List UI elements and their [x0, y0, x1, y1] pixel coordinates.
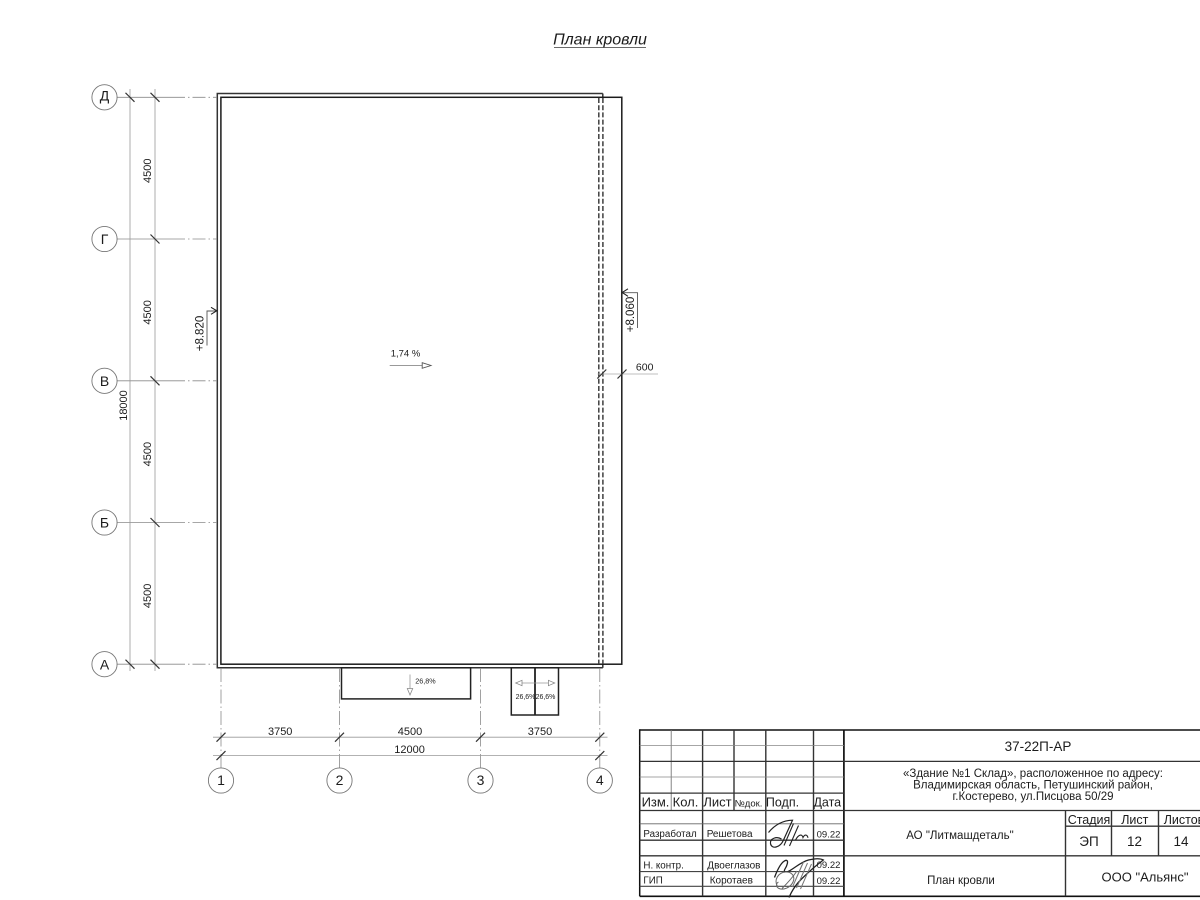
svg-text:Д: Д	[100, 87, 110, 103]
svg-text:600: 600	[636, 362, 654, 374]
svg-text:Листов: Листов	[1164, 813, 1200, 827]
svg-text:4500: 4500	[398, 726, 422, 738]
svg-text:Н. контр.: Н. контр.	[643, 861, 683, 872]
svg-text:4500: 4500	[142, 442, 154, 466]
svg-text:Дата: Дата	[813, 795, 841, 809]
svg-text:ЭП: ЭП	[1079, 834, 1098, 849]
svg-text:Владимирская область, Петушинс: Владимирская область, Петушинский район,	[913, 780, 1153, 792]
svg-text:№док.: №док.	[735, 798, 763, 809]
svg-text:3750: 3750	[528, 726, 552, 738]
svg-text:4500: 4500	[142, 300, 154, 324]
svg-text:Разработал: Разработал	[643, 829, 697, 840]
svg-text:Б: Б	[100, 515, 109, 531]
svg-text:Кол.: Кол.	[673, 794, 699, 809]
svg-text:26,8%: 26,8%	[415, 677, 436, 686]
svg-text:14: 14	[1173, 834, 1189, 849]
svg-text:3: 3	[477, 772, 485, 788]
svg-text:4500: 4500	[142, 158, 154, 182]
svg-text:12000: 12000	[394, 744, 425, 756]
svg-text:1: 1	[217, 772, 225, 788]
svg-text:1,74 %: 1,74 %	[391, 349, 421, 360]
svg-text:Решетова: Решетова	[707, 829, 753, 840]
svg-text:А: А	[100, 656, 110, 672]
svg-text:г.Костерево, ул.Писцова 50/29: г.Костерево, ул.Писцова 50/29	[953, 791, 1114, 803]
svg-text:Г: Г	[101, 231, 109, 247]
svg-text:План кровли: План кровли	[927, 875, 995, 887]
svg-text:АО "Литмашдеталь": АО "Литмашдеталь"	[906, 830, 1013, 842]
svg-text:4: 4	[596, 772, 604, 788]
svg-text:ГИП: ГИП	[643, 876, 662, 887]
svg-text:+8.820: +8.820	[195, 316, 207, 352]
svg-text:«Здание №1 Склад», расположенн: «Здание №1 Склад», расположенное по адре…	[903, 768, 1163, 780]
svg-text:09.22: 09.22	[817, 830, 841, 841]
svg-text:37-22П-АР: 37-22П-АР	[1005, 739, 1072, 754]
svg-text:12: 12	[1127, 834, 1142, 849]
svg-text:Подп.: Подп.	[766, 795, 799, 809]
svg-text:План кровли: План кровли	[553, 32, 647, 49]
svg-text:26,6%: 26,6%	[536, 694, 556, 701]
svg-text:Коротаев: Коротаев	[710, 876, 753, 887]
svg-text:Изм.: Изм.	[642, 794, 670, 809]
svg-text:2: 2	[336, 772, 344, 788]
svg-text:3750: 3750	[268, 726, 292, 738]
svg-text:В: В	[100, 373, 109, 389]
svg-text:Двоеглазов: Двоеглазов	[707, 861, 760, 872]
svg-text:18000: 18000	[118, 390, 130, 421]
svg-text:ООО "Альянс": ООО "Альянс"	[1102, 869, 1189, 884]
svg-text:26,6%: 26,6%	[516, 694, 536, 701]
svg-text:Стадия: Стадия	[1068, 813, 1111, 827]
svg-text:09.22: 09.22	[817, 876, 841, 887]
svg-text:4500: 4500	[142, 584, 154, 608]
svg-text:Лист: Лист	[703, 794, 731, 809]
svg-text:+8.060: +8.060	[625, 297, 637, 333]
svg-text:Лист: Лист	[1121, 813, 1148, 827]
